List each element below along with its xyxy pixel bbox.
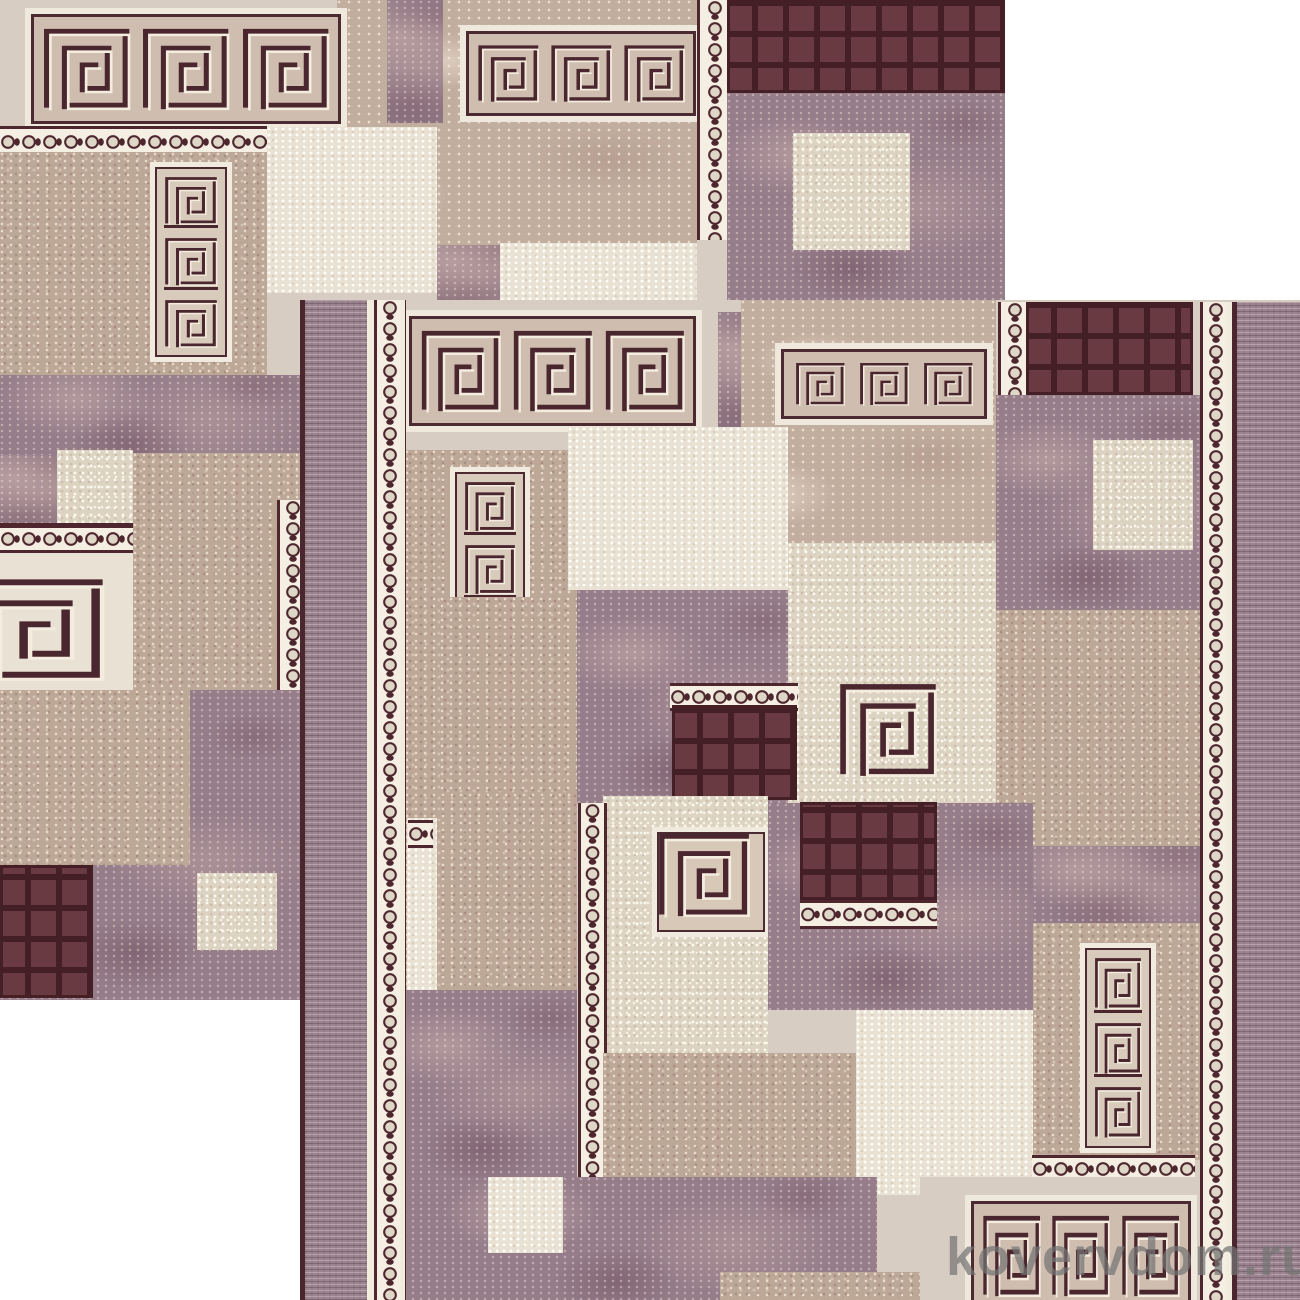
texture-block-purple: [387, 0, 443, 123]
bead-border-horizontal: [800, 900, 937, 929]
greek-spiral-motif: [604, 329, 686, 413]
greek-spiral-motif: [464, 481, 516, 535]
texture-block-purple: [403, 990, 577, 1177]
chocolate-grid-block: [672, 705, 797, 800]
carpet-border-line: [367, 300, 374, 1300]
texture-block-cream: [1093, 440, 1193, 550]
texture-block-striate: [1237, 302, 1300, 1300]
greek-spiral-motif: [838, 682, 938, 778]
texture-block-striate: [305, 300, 367, 1300]
spiral-square-motif: [838, 682, 938, 778]
greek-spiral-motif: [164, 237, 218, 289]
greek-spiral-motif: [512, 329, 594, 413]
texture-block-cream: [793, 133, 910, 250]
spiral-square-motif: [652, 827, 770, 937]
texture-block-cream2: [267, 127, 437, 293]
texture-block-tan: [603, 1053, 856, 1177]
greek-spiral-motif: [859, 362, 910, 406]
texture-block-tan: [0, 690, 190, 865]
texture-block-tan: [720, 1272, 920, 1300]
texture-block-purple: [1033, 846, 1202, 923]
greek-spiral-motif: [1094, 957, 1142, 1013]
greek-spiral-motif: [141, 27, 230, 111]
texture-block-cream2: [488, 1177, 563, 1253]
greek-spiral-motif: [241, 27, 330, 111]
greek-spiral-motif: [164, 299, 218, 348]
greek-spiral-motif: [923, 362, 974, 406]
chocolate-grid-block: [800, 802, 937, 900]
greek-spiral-motif: [164, 176, 218, 228]
greek-spiral-motif: [0, 577, 106, 682]
greek-spiral-motif: [477, 44, 540, 103]
chocolate-grid-block: [0, 865, 93, 998]
texture-block-cream: [57, 450, 133, 525]
texture-block-purple: [437, 245, 500, 300]
greek-spiral-motif: [464, 544, 516, 598]
greek-key-band: [25, 8, 347, 130]
texture-block-cream2: [568, 427, 788, 590]
greek-key-band: [775, 343, 993, 425]
watermark-text: kovervdom.ru: [946, 1226, 1300, 1288]
triple-spiral-panel: [1080, 943, 1156, 1153]
greek-spiral-motif: [42, 27, 131, 111]
chocolate-grid-block: [727, 0, 1005, 93]
greek-key-band: [460, 25, 702, 122]
texture-block-tan: [440, 597, 577, 793]
product-photo: kovervdom.ru: [0, 0, 1300, 1300]
texture-block-cream2: [856, 1010, 1033, 1195]
texture-block-cream2: [500, 243, 697, 300]
carpet-border-line: [400, 300, 405, 1300]
texture-block-purple: [0, 375, 300, 455]
texture-block-cream: [197, 873, 277, 950]
greek-spiral-motif: [657, 832, 751, 918]
greek-spiral-motif: [623, 44, 686, 103]
greek-spiral-motif: [420, 329, 502, 413]
chocolate-grid-block: [1026, 302, 1193, 395]
carpet-tile-front: [300, 300, 1300, 1300]
bead-border-horizontal: [408, 820, 433, 848]
greek-spiral-motif: [1094, 1022, 1142, 1078]
greek-spiral-motif: [1094, 1086, 1142, 1139]
bead-border-horizontal: [0, 525, 133, 553]
triple-spiral-panel: [150, 162, 232, 362]
cut-spiral-panel: [0, 523, 133, 704]
greek-spiral-motif: [550, 44, 613, 103]
texture-block-purple: [0, 455, 57, 527]
greek-key-band: [403, 310, 702, 432]
greek-spiral-motif: [795, 362, 846, 406]
